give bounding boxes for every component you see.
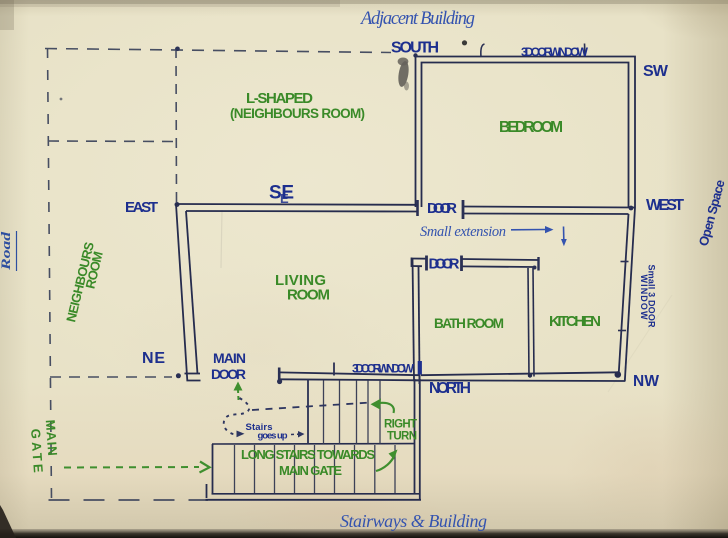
- svg-text:Road: Road: [0, 231, 13, 271]
- svg-text:Adjacent Building: Adjacent Building: [359, 9, 475, 29]
- svg-text:RIGHT: RIGHT: [384, 419, 417, 431]
- svg-text:EAST: EAST: [125, 199, 158, 216]
- svg-text:Stairways & Building: Stairways & Building: [340, 511, 487, 531]
- svg-text:WEST: WEST: [646, 197, 684, 214]
- svg-text:SOUTH: SOUTH: [391, 40, 439, 57]
- svg-text:LONG STAIRS TOWARDS: LONG STAIRS TOWARDS: [241, 447, 375, 462]
- svg-text:MAIN GATE: MAIN GATE: [279, 463, 342, 478]
- svg-text:SW: SW: [643, 63, 669, 80]
- svg-text:L-SHAPED: L-SHAPED: [246, 90, 313, 107]
- svg-text:KITCHEN: KITCHEN: [549, 313, 601, 330]
- svg-text:NE: NE: [142, 350, 165, 367]
- svg-text:TURN: TURN: [387, 431, 417, 443]
- svg-text:3DOOR WINDOW: 3DOOR WINDOW: [352, 362, 415, 376]
- svg-text:GATE: GATE: [28, 428, 46, 473]
- svg-text:NORTH: NORTH: [429, 380, 471, 397]
- svg-text:DOOR: DOOR: [429, 256, 460, 273]
- svg-text:E: E: [280, 191, 289, 206]
- svg-text:ROOM: ROOM: [287, 287, 330, 304]
- svg-text:goes up: goes up: [258, 431, 288, 442]
- svg-text:BATH ROOM: BATH ROOM: [434, 316, 504, 331]
- svg-text:Open Space: Open Space: [696, 178, 728, 248]
- svg-text:DOOR: DOOR: [211, 366, 246, 382]
- svg-text:WINDOW: WINDOW: [639, 275, 649, 321]
- svg-text:NW: NW: [633, 373, 659, 390]
- svg-text:MAIN: MAIN: [43, 419, 60, 456]
- svg-text:MAIN: MAIN: [213, 350, 246, 366]
- svg-text:Small extension: Small extension: [420, 224, 506, 240]
- svg-text:DOOR: DOOR: [427, 200, 457, 217]
- svg-text:3DOORWINDOW: 3DOORWINDOW: [521, 45, 589, 59]
- svg-text:BEDROOM: BEDROOM: [499, 119, 563, 136]
- svg-text:(NEIGHBOURS ROOM): (NEIGHBOURS ROOM): [230, 106, 365, 121]
